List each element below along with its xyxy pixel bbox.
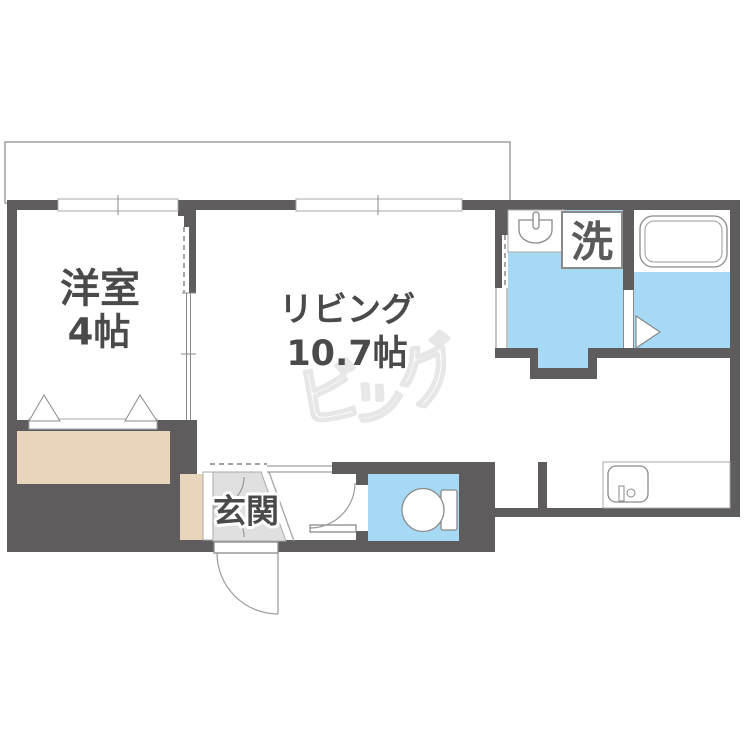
faucet-icon <box>533 212 539 229</box>
folding-door-icon <box>125 395 157 421</box>
sink-drain-icon <box>627 489 635 497</box>
balcony-outline <box>5 142 510 203</box>
kitchen-sink-icon <box>608 466 648 502</box>
sink-faucet-icon <box>619 486 624 501</box>
kitchen <box>603 462 730 508</box>
wall-segment <box>197 540 214 552</box>
front-door-leaf <box>214 542 278 553</box>
wall-right <box>730 210 740 517</box>
washroom-door-gap <box>495 288 508 348</box>
entrance-area <box>197 462 294 614</box>
label-western-room-size: 4帖 <box>68 311 131 354</box>
closet-interior <box>17 431 170 484</box>
wall-segment <box>7 200 58 210</box>
wall-segment <box>189 227 196 293</box>
washroom-alcove <box>538 348 588 368</box>
toilet-door-gap <box>356 485 368 531</box>
wall-segment <box>184 216 196 227</box>
shoe-cabinet <box>180 474 203 540</box>
wall-left <box>7 210 17 425</box>
floorplan-page: ビ ッ グ 洋室 4帖 リビング 10.7帖 玄関 洗 <box>0 0 750 750</box>
bathroom <box>624 210 731 348</box>
label-laundry: 洗 <box>571 218 613 267</box>
living-hall-boundary <box>210 464 332 472</box>
bathtub-icon <box>640 216 727 267</box>
label-living: リビング <box>279 290 415 330</box>
toilet-door-leaf <box>310 525 356 532</box>
wall-kitchen-divider <box>538 462 547 508</box>
label-entrance: 玄関 <box>213 492 279 531</box>
wall-bath-left <box>623 210 634 290</box>
wall-partition-corner <box>178 200 196 216</box>
wall-bottom-right-band <box>495 508 740 517</box>
closet <box>29 395 157 429</box>
shoe-cabinet-doors <box>203 472 213 540</box>
wall-toilet-right <box>459 474 495 552</box>
window-living <box>296 199 462 211</box>
wall-segment <box>356 531 368 540</box>
wall-toilet-top <box>332 462 495 474</box>
toilet-bowl-icon <box>402 489 444 532</box>
floorplan-drawing: ビ ッ グ 洋室 4帖 リビング 10.7帖 玄関 洗 <box>0 0 750 750</box>
front-door-swing-arc <box>217 553 278 614</box>
label-western-room: 洋室 <box>60 266 140 312</box>
folding-door-icon <box>29 395 60 421</box>
label-living-size: 10.7帖 <box>286 334 407 374</box>
wall-segment <box>356 474 368 485</box>
toilet-door-swing-arc <box>310 483 355 528</box>
wall-segment <box>462 200 740 210</box>
